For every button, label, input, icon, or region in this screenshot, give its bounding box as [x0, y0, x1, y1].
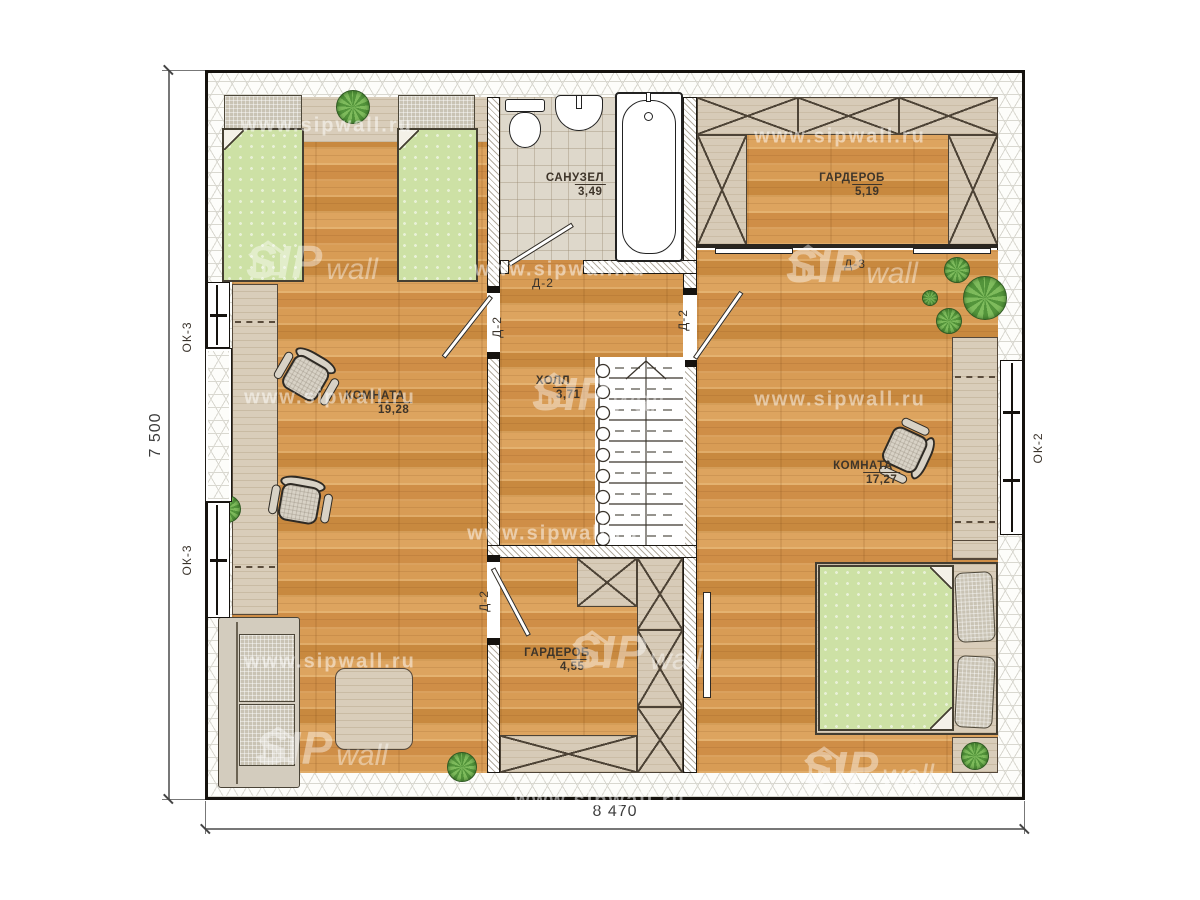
- wall-segment: [487, 97, 500, 293]
- door-label-d2: Д-2: [676, 309, 690, 331]
- closet-x: [500, 735, 637, 773]
- room-area: 4,55: [557, 659, 587, 673]
- desk-right: [952, 337, 998, 560]
- dimension-line-horizontal: [205, 828, 1025, 830]
- door-jamb: [487, 286, 500, 293]
- plant: [336, 90, 370, 124]
- toilet: [505, 99, 545, 112]
- bed-headboard: [398, 95, 475, 130]
- room-area: 17,27: [863, 472, 900, 486]
- window-mullion: [1003, 411, 1020, 414]
- nightstand: [952, 540, 998, 559]
- plant: [936, 308, 962, 334]
- blanket-fold: [224, 130, 244, 150]
- wall-segment: [583, 260, 697, 274]
- window-ok3-upper: [207, 282, 230, 348]
- door-jamb: [487, 555, 500, 562]
- plant: [922, 290, 938, 306]
- dimension-line-vertical: [168, 70, 170, 800]
- pillow: [954, 571, 996, 643]
- desk-divider: [235, 566, 275, 568]
- room-name: КОМНАТА: [345, 390, 405, 402]
- bed-single-left: [222, 128, 304, 282]
- door-label-d2: Д-2: [477, 590, 491, 612]
- bathtub-drain: [644, 112, 653, 121]
- wall-segment: [683, 360, 697, 773]
- room-name: ГАРДЕРОБ: [524, 647, 590, 659]
- room-name: ХОЛЛ: [536, 375, 570, 387]
- room-name: ГАРДЕРОБ: [819, 172, 885, 184]
- window-label-ok2: ОК-2: [1031, 433, 1045, 464]
- room-label-wardrobe-bottom: ГАРДЕРОБ 4,55: [524, 647, 590, 659]
- wall-pier-fill: [208, 351, 229, 499]
- sofa: [218, 617, 300, 788]
- floor-plan: САНУЗЕЛ 3,49 ГАРДЕРОБ 5,19 КОМНАТА 19,28…: [0, 0, 1200, 900]
- window-label-ok3: ОК-3: [180, 545, 194, 576]
- room-label-bathroom: САНУЗЕЛ 3,49: [546, 172, 604, 184]
- sofa-cushion: [239, 704, 295, 766]
- sofa-back-line: [236, 622, 238, 784]
- plant: [961, 742, 989, 770]
- chair-seat: [276, 482, 322, 526]
- window-mullion: [1003, 479, 1020, 482]
- room-label-hall: ХОЛЛ 3,71: [536, 375, 570, 387]
- toilet-bowl: [509, 112, 541, 148]
- room-name: КОМНАТА: [833, 460, 893, 472]
- closet-x: [798, 97, 899, 135]
- door-label-d2: Д-2: [490, 316, 504, 338]
- sliding-door-panel: [715, 248, 793, 254]
- bathtub-inner: [622, 100, 676, 254]
- closet-x: [577, 558, 637, 607]
- office-chair: [272, 473, 330, 529]
- wall-segment: [487, 352, 500, 562]
- room-label-room-left: КОМНАТА 19,28: [345, 390, 405, 402]
- door-jamb: [683, 360, 697, 367]
- bed-headboard: [224, 95, 302, 130]
- room-area: 5,19: [852, 184, 882, 198]
- blanket-fold: [930, 707, 952, 729]
- closet-x: [697, 97, 798, 135]
- window-mullion: [210, 314, 227, 317]
- window-label-ok3: ОК-3: [180, 322, 194, 353]
- closet-x: [899, 97, 998, 135]
- wall-segment: [487, 638, 500, 773]
- blanket-fold: [930, 567, 952, 589]
- dimension-height-label: 7 500: [147, 412, 165, 457]
- room-name: САНУЗЕЛ: [546, 172, 604, 184]
- plant: [447, 752, 477, 782]
- window-ok3-lower: [207, 502, 230, 618]
- desk-left: [232, 284, 278, 615]
- bathtub-tap: [646, 92, 651, 102]
- door-jamb: [487, 352, 500, 359]
- floor-wardrobe-top: [747, 135, 948, 245]
- pillow: [954, 655, 996, 729]
- coffee-table: [335, 668, 413, 750]
- closet-x: [637, 558, 683, 630]
- desk-divider: [235, 321, 275, 323]
- window-glazing: [1011, 363, 1013, 532]
- blanket-fold: [399, 130, 419, 150]
- door-label-d3: Д-3: [844, 257, 866, 271]
- dimension-width-label: 8 470: [592, 803, 637, 821]
- door-label-d2: Д-2: [532, 276, 554, 290]
- door-jamb: [683, 288, 697, 295]
- room-area: 3,71: [553, 387, 583, 401]
- room-area: 19,28: [375, 402, 412, 416]
- closet-x: [697, 135, 747, 245]
- window-ok2: [1000, 360, 1023, 535]
- plant: [963, 276, 1007, 320]
- staircase: [595, 357, 685, 545]
- sofa-cushion: [239, 634, 295, 702]
- sliding-door-panel: [913, 248, 991, 254]
- sink-faucet: [576, 95, 582, 109]
- window-mullion: [210, 559, 227, 562]
- door-leaf-open-flat: [703, 592, 711, 698]
- closet-x: [637, 707, 683, 773]
- bed-single-right: [397, 128, 478, 282]
- desk-divider: [955, 376, 995, 378]
- room-area: 3,49: [575, 184, 605, 198]
- desk-divider: [955, 521, 995, 523]
- room-label-wardrobe-top: ГАРДЕРОБ 5,19: [819, 172, 885, 184]
- plant: [944, 257, 970, 283]
- closet-x: [637, 630, 683, 707]
- door-jamb: [487, 638, 500, 645]
- closet-x: [948, 135, 998, 245]
- room-label-room-right: КОМНАТА 17,27: [833, 460, 893, 472]
- wall-segment: [487, 545, 697, 558]
